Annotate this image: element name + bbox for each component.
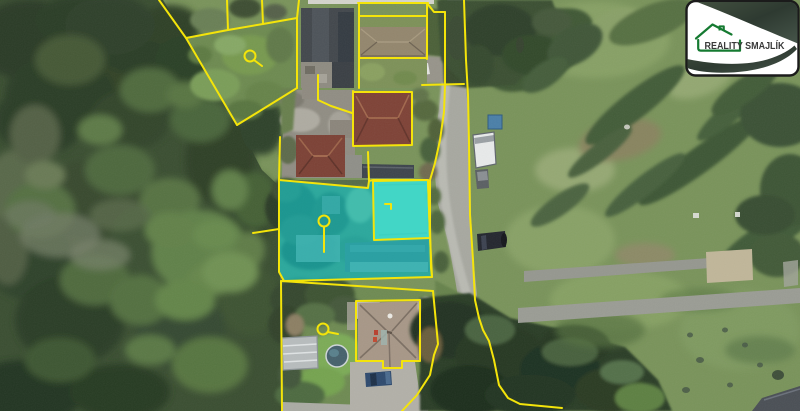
svg-text:REALITY SMAJLÍK: REALITY SMAJLÍK — [705, 40, 785, 52]
